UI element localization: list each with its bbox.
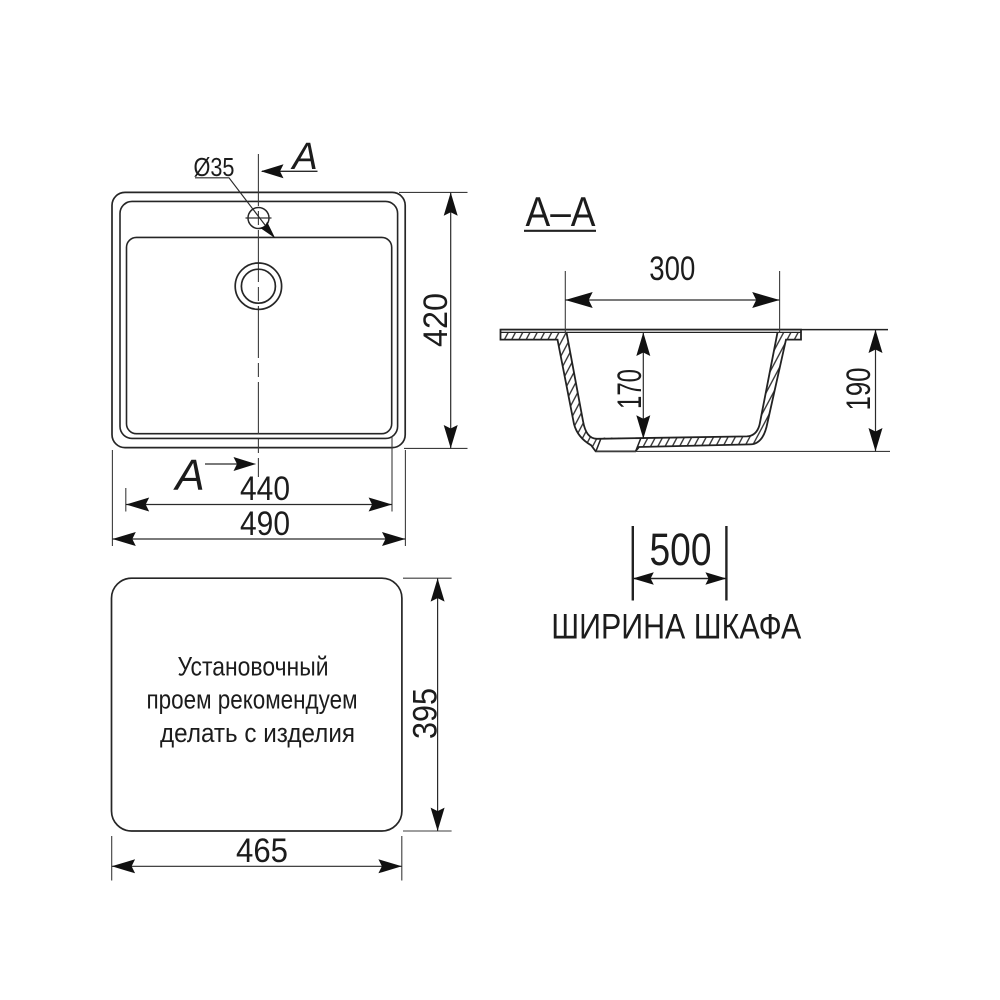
svg-text:465: 465 <box>236 832 288 870</box>
svg-text:A–A: A–A <box>526 188 596 235</box>
svg-text:420: 420 <box>417 293 455 347</box>
svg-text:300: 300 <box>649 250 695 288</box>
svg-text:A: A <box>290 136 317 178</box>
svg-text:490: 490 <box>240 505 290 543</box>
svg-text:440: 440 <box>240 470 290 508</box>
svg-text:Установочный: Установочный <box>178 652 329 682</box>
svg-text:A: A <box>172 451 204 500</box>
svg-text:170: 170 <box>611 369 649 409</box>
svg-text:проем рекомендуем: проем рекомендуем <box>147 685 358 715</box>
svg-text:делать с изделия: делать с изделия <box>160 718 355 748</box>
svg-text:395: 395 <box>407 688 445 739</box>
svg-text:190: 190 <box>840 368 878 411</box>
svg-text:ШИРИНА ШКАФА: ШИРИНА ШКАФА <box>551 608 802 647</box>
svg-text:500: 500 <box>650 524 712 575</box>
